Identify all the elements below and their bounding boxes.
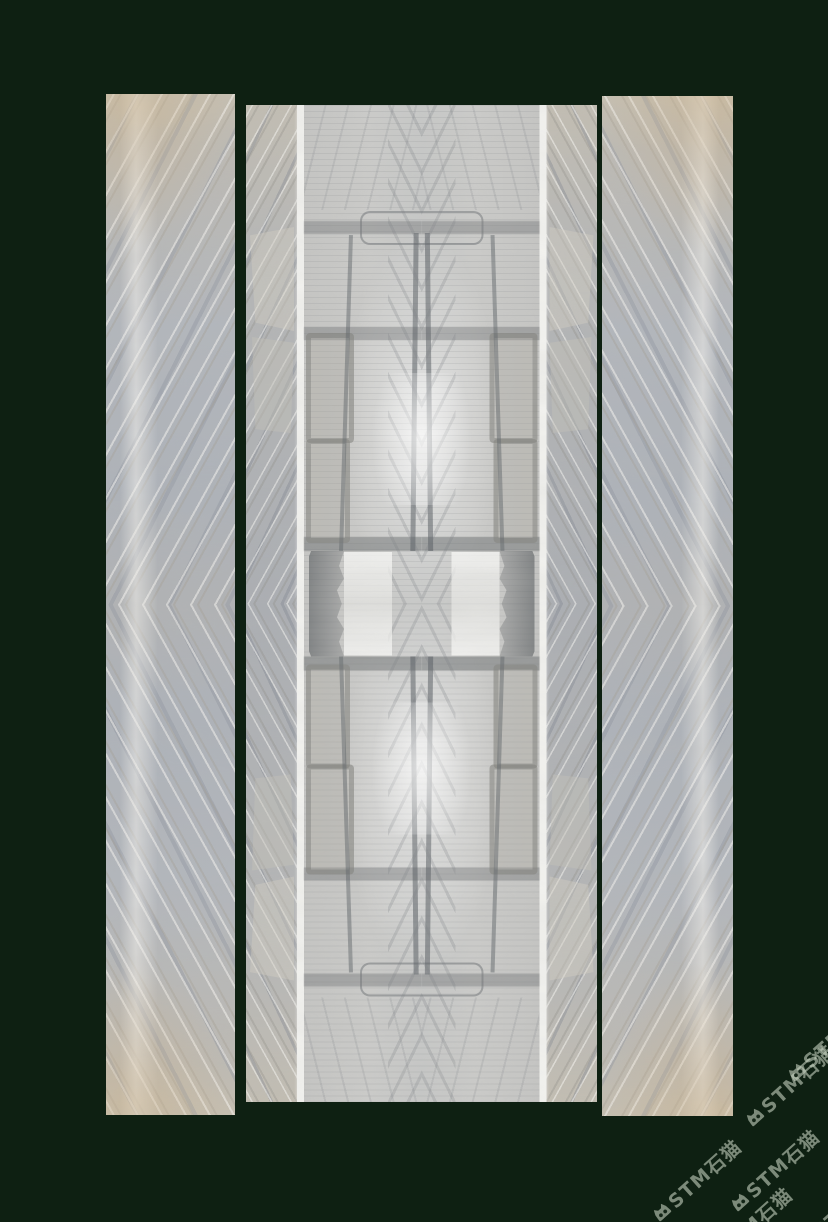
marble-slab-center (246, 105, 597, 1102)
quadrant-slot (246, 604, 422, 1103)
marble-vein-blob (549, 337, 591, 433)
marble-slab-right (602, 96, 733, 1116)
dark-wavy-column (309, 604, 344, 657)
marble-quadrant (422, 604, 598, 1103)
marble-vein-blob (549, 227, 593, 331)
outer-marble-column (246, 604, 298, 1103)
marble-vein-blob (250, 876, 294, 980)
center-chevron-texture (422, 604, 456, 1103)
marble-vein-blob (250, 227, 294, 331)
watermark-text: STM石猫 (797, 993, 828, 1074)
marble-texture (106, 605, 235, 1116)
bright-reflection-glow (422, 702, 492, 834)
marble-texture (602, 96, 733, 606)
product-photo-stage: STM石猫STM石猫STM石猫STM石猫STM石猫STM石猫 (0, 0, 828, 1222)
marble-quadrant (422, 105, 598, 604)
quadrant-slot-mirrored (422, 105, 598, 604)
white-light-stripe (297, 105, 304, 604)
center-chevron-texture (388, 604, 422, 1103)
inner-reflection-area (422, 105, 540, 604)
bright-center-cell (451, 604, 499, 656)
bright-reflection-glow (422, 373, 492, 505)
white-light-stripe (297, 604, 304, 1103)
bright-center-cell (344, 552, 392, 604)
white-light-stripe (539, 604, 546, 1103)
bright-reflection-glow (352, 373, 422, 505)
center-chevron-texture (388, 105, 422, 604)
marble-vein-blob (252, 774, 294, 870)
quadrant-slot-mirrored (422, 604, 598, 1103)
dark-wavy-column (499, 604, 534, 657)
inner-reflection-area (304, 604, 422, 1103)
cat-logo-icon (651, 1202, 672, 1222)
cat-logo-icon (729, 1192, 750, 1212)
dark-wavy-column (309, 551, 344, 604)
slab-bottom-half-mirrored (106, 605, 235, 1116)
center-chevron-texture (422, 105, 456, 604)
slab-top-half (106, 94, 235, 605)
outer-marble-column (545, 604, 597, 1103)
outer-marble-column (246, 105, 298, 604)
marble-texture (106, 94, 235, 605)
slab-top-half (246, 105, 597, 604)
inner-reflection-area (422, 604, 540, 1103)
marble-slab-left (106, 94, 235, 1115)
slab-top-half (602, 96, 733, 606)
marble-vein-blob (549, 876, 593, 980)
bright-center-cell (344, 604, 392, 656)
cat-logo-icon (744, 1107, 765, 1127)
watermark: STM石猫 (647, 1133, 748, 1222)
dark-wavy-column (499, 551, 534, 604)
slab-bottom-half-mirrored (602, 606, 733, 1116)
watermark: STM石猫 (792, 1163, 828, 1222)
outer-marble-column (545, 105, 597, 604)
marble-texture (602, 606, 733, 1116)
white-light-stripe (539, 105, 546, 604)
watermark-text: STM石猫 (807, 1163, 828, 1222)
marble-vein-blob (252, 337, 294, 433)
slab-bottom-half-mirrored (246, 604, 597, 1103)
bright-reflection-glow (352, 702, 422, 834)
inner-reflection-area (304, 105, 422, 604)
quadrant-slot (246, 105, 422, 604)
marble-quadrant (246, 105, 422, 604)
bright-center-cell (451, 552, 499, 604)
marble-vein-blob (549, 774, 591, 870)
marble-quadrant (246, 604, 422, 1103)
